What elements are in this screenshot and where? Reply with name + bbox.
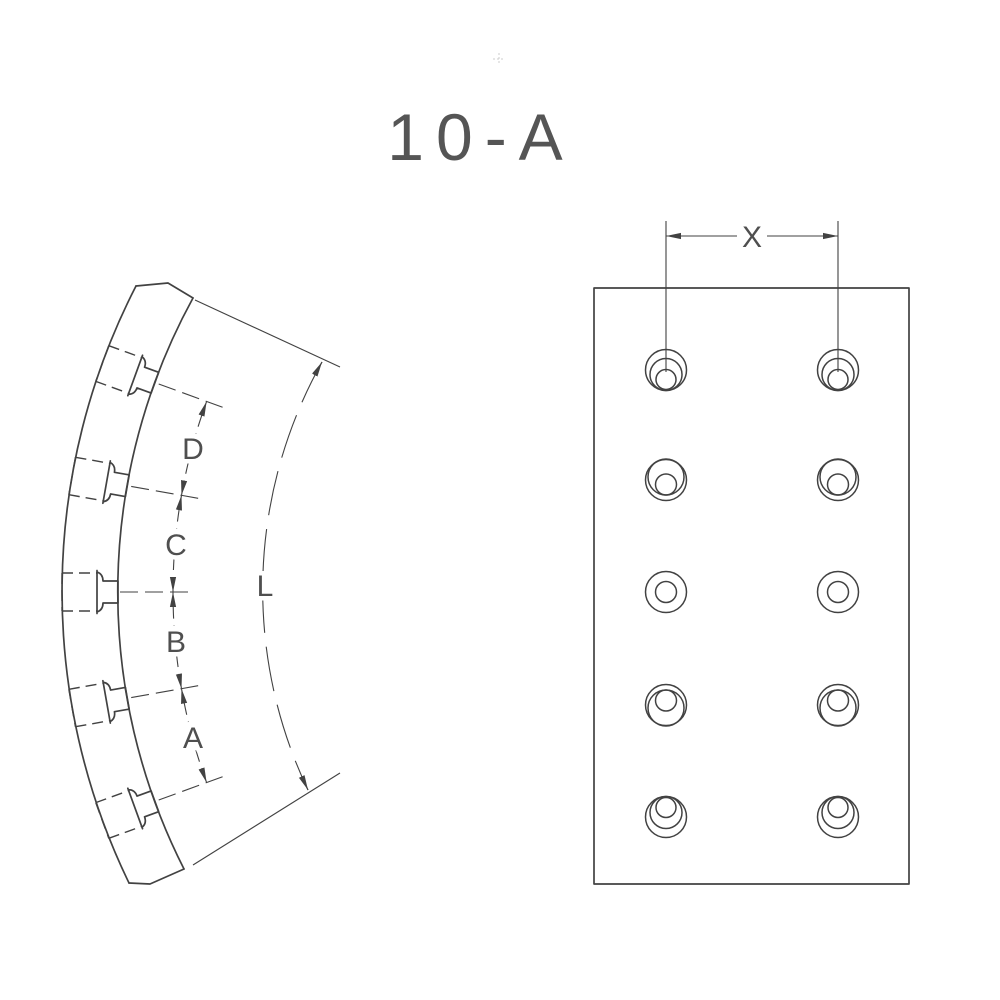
plate-outline [594, 288, 909, 884]
hole-row5-col2 [818, 797, 859, 838]
hole-row3-col1 [646, 572, 687, 613]
drawing-title: 10-A [387, 100, 574, 174]
outer-arc [62, 286, 136, 883]
hole-row3-col2 [818, 572, 859, 613]
x-dimension: X [666, 221, 838, 372]
registration-cross-icon [493, 53, 505, 65]
hole-row4-col2 [818, 685, 859, 727]
dim-label-d: D [182, 433, 204, 466]
l-extension-bottom [193, 773, 340, 865]
bolt-1 [95, 343, 162, 403]
dim-label-c: C [165, 529, 187, 562]
bolt-4 [68, 677, 131, 729]
dim-label-l: L [257, 570, 274, 603]
drawing-svg: 10-A [0, 0, 1000, 1000]
side-view: D C B A L [62, 283, 340, 884]
dim-label-a: A [183, 722, 203, 755]
top-end-face [136, 283, 193, 298]
bottom-end-face [129, 869, 184, 884]
bolt-2 [68, 455, 131, 507]
plan-view: X [594, 221, 909, 884]
hole-row2-col1 [646, 459, 687, 501]
hole-row5-col1 [646, 797, 687, 838]
dim-label-b: B [166, 626, 186, 659]
hole-row4-col1 [646, 685, 687, 727]
bolt-3 [62, 571, 118, 614]
hole-row2-col2 [818, 459, 859, 501]
l-extension-top [195, 300, 340, 367]
drawing-canvas: 10-A [0, 0, 1000, 1000]
bolt-5 [95, 781, 162, 841]
dim-label-x: X [742, 221, 762, 254]
